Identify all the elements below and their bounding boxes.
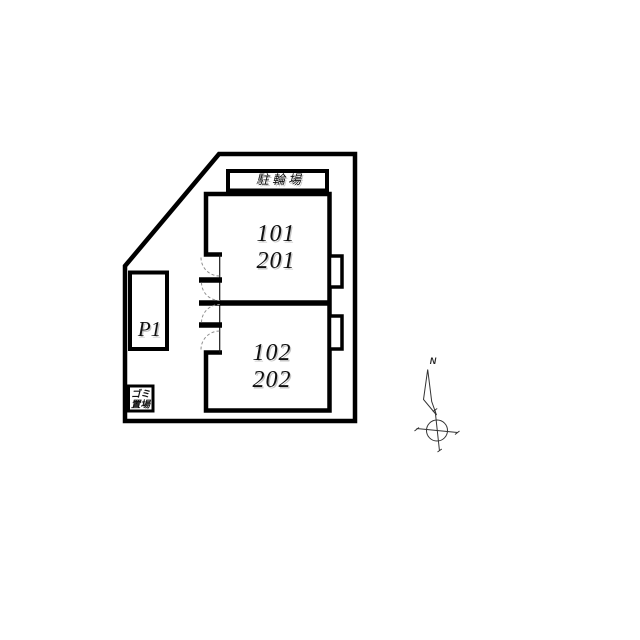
door-swing-arc xyxy=(202,304,220,322)
unit-202-label: 202 xyxy=(253,367,292,393)
compass-needle-icon xyxy=(424,370,437,416)
north-label: N xyxy=(430,356,437,366)
right-wall-recess-bottom xyxy=(330,316,343,349)
floor-plan-drawing: 駐輪場 駐輪場 101 101 201 201 102 102 202 202 … xyxy=(0,0,640,640)
unit-201-label: 201 xyxy=(257,248,296,274)
door-swing-arc xyxy=(201,258,220,277)
door-swing-arc xyxy=(202,283,220,301)
site-plan-image: 駐輪場 駐輪場 101 101 201 201 102 102 202 202 … xyxy=(0,0,640,640)
unit-101-label: 101 xyxy=(257,221,296,247)
parking-space-label: P1 xyxy=(137,317,161,341)
door-swing-arc xyxy=(201,331,220,350)
garbage-area-label-line2: 置場 xyxy=(131,399,152,411)
garbage-area-label-line1: ゴミ xyxy=(131,388,151,400)
bicycle-parking-label: 駐輪場 xyxy=(256,172,304,187)
right-wall-recess-top xyxy=(330,256,343,287)
unit-102-label: 102 xyxy=(253,340,292,366)
north-arrow-compass: N xyxy=(415,356,460,452)
